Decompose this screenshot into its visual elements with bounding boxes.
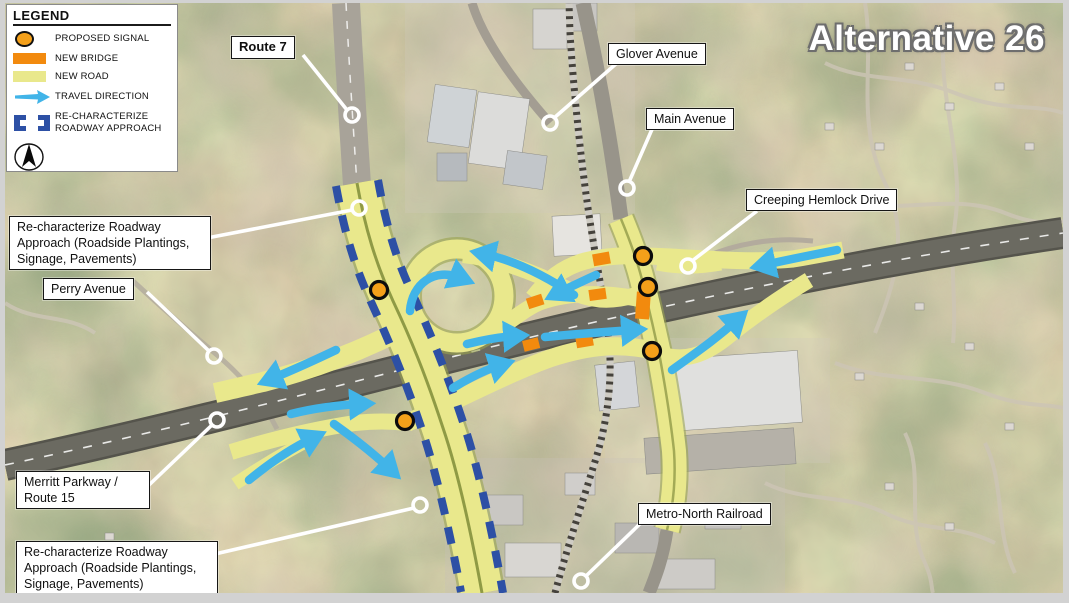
callout-main-avenue: Main Avenue [646,108,734,130]
callout-glover-label: Glover Avenue [616,47,698,61]
legend-item-label: PROPOSED SIGNAL [55,33,149,45]
legend-item-label: NEW ROAD [55,71,109,83]
callout-creeping-label: Creeping Hemlock Drive [754,193,889,207]
callout-route7-label: Route 7 [239,39,287,54]
callout-recharacterize-south-label: Re-characterize Roadway Approach (Roadsi… [24,545,196,591]
legend-item-new-bridge: NEW BRIDGE [13,53,171,65]
callout-route7: Route 7 [231,36,295,59]
callout-merritt-label: Merritt Parkway / Route 15 [24,475,118,505]
slide-title: Alternative 26 [808,19,1045,59]
callout-glover-avenue: Glover Avenue [608,43,706,65]
callout-merritt-parkway: Merritt Parkway / Route 15 [16,471,150,509]
legend: LEGEND PROPOSED SIGNAL NEW BRIDGE NEW RO… [6,4,178,172]
new-road-icon [13,71,46,82]
travel-direction-arrow-icon [13,89,51,105]
callout-metro-north: Metro-North Railroad [638,503,771,525]
callout-metro-label: Metro-North Railroad [646,507,763,521]
slide-frame: LEGEND PROPOSED SIGNAL NEW BRIDGE NEW RO… [0,0,1069,603]
callout-main-label: Main Avenue [654,112,726,126]
callout-recharacterize-north: Re-characterize Roadway Approach (Roadsi… [9,216,211,270]
callout-recharacterize-north-label: Re-characterize Roadway Approach (Roadsi… [17,220,189,266]
legend-divider [13,24,171,26]
legend-item-travel-direction: TRAVEL DIRECTION [13,89,171,105]
aerial-map: LEGEND PROPOSED SIGNAL NEW BRIDGE NEW RO… [5,3,1063,593]
legend-item-new-road: NEW ROAD [13,71,171,83]
legend-item-label: RE-CHARACTERIZE ROADWAY APPROACH [55,111,171,135]
proposed-signal [635,248,652,265]
legend-item-label: TRAVEL DIRECTION [55,91,149,103]
proposed-signal [644,343,661,360]
new-bridge-icon [13,53,46,64]
legend-item-proposed-signal: PROPOSED SIGNAL [13,31,171,47]
proposed-signal-icon [15,31,34,47]
proposed-signal [371,282,388,299]
callout-recharacterize-south: Re-characterize Roadway Approach (Roadsi… [16,541,218,593]
proposed-signal [640,279,657,296]
proposed-signal [397,413,414,430]
callout-creeping-hemlock: Creeping Hemlock Drive [746,189,897,211]
legend-item-recharacterize: RE-CHARACTERIZE ROADWAY APPROACH [13,111,171,135]
legend-item-label: NEW BRIDGE [55,53,118,65]
new-bridge [588,288,606,301]
legend-title: LEGEND [13,8,171,23]
callout-perry-label: Perry Avenue [51,282,126,296]
legend-north-arrow [13,141,171,173]
creeping-hemlock-slip [657,265,721,268]
callout-perry-avenue: Perry Avenue [43,278,134,300]
recharacterize-dash-icon [13,113,51,133]
north-compass-icon [13,141,45,173]
route7-existing-road [346,3,357,185]
